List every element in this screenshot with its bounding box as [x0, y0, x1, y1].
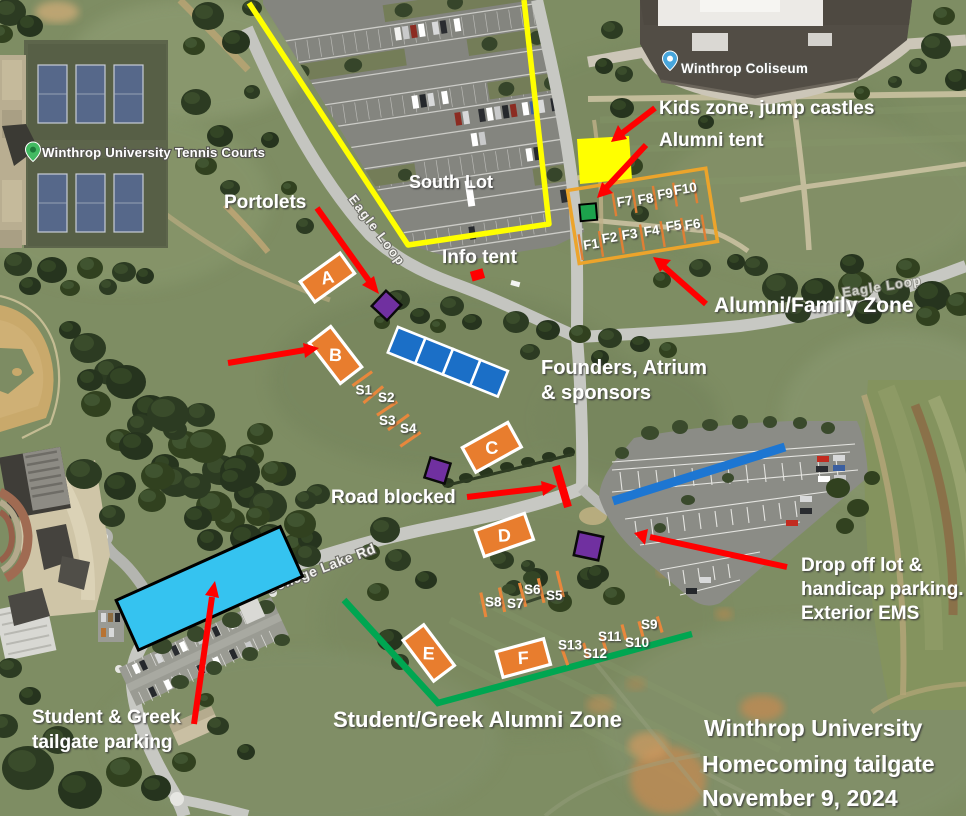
svg-text:F: F: [517, 648, 529, 669]
svg-text:S6: S6: [524, 582, 541, 597]
svg-text:Kids zone, jump castles: Kids zone, jump castles: [659, 98, 874, 119]
svg-text:S2: S2: [378, 390, 395, 405]
svg-text:F6: F6: [684, 216, 702, 233]
svg-text:S1: S1: [356, 383, 373, 398]
svg-text:F8: F8: [637, 190, 655, 207]
svg-text:S8: S8: [485, 595, 502, 610]
svg-text:S3: S3: [379, 413, 396, 428]
svg-text:E: E: [422, 643, 435, 663]
svg-text:tailgate parking: tailgate parking: [32, 732, 172, 753]
svg-text:F7: F7: [616, 193, 634, 210]
svg-text:Founders, Atrium: Founders, Atrium: [541, 357, 707, 379]
svg-text:Info tent: Info tent: [442, 247, 518, 268]
svg-text:S7: S7: [507, 596, 524, 611]
svg-text:B: B: [329, 345, 343, 366]
svg-text:F1: F1: [582, 236, 600, 253]
svg-text:Homecoming tailgate: Homecoming tailgate: [702, 751, 935, 777]
svg-text:Alumni/Family Zone: Alumni/Family Zone: [714, 294, 914, 317]
svg-text:D: D: [497, 525, 511, 546]
svg-text:Road blocked: Road blocked: [331, 487, 456, 508]
svg-text:F9: F9: [656, 185, 674, 202]
svg-text:F4: F4: [643, 222, 661, 239]
svg-text:South Lot: South Lot: [409, 172, 493, 192]
svg-text:Portolets: Portolets: [224, 192, 306, 213]
svg-text:F5: F5: [665, 217, 683, 234]
svg-text:Student/Greek Alumni Zone: Student/Greek Alumni Zone: [333, 707, 622, 732]
svg-text:S4: S4: [400, 421, 417, 436]
svg-text:November 9, 2024: November 9, 2024: [702, 785, 898, 811]
svg-text:Exterior EMS: Exterior EMS: [801, 603, 919, 624]
svg-text:S13: S13: [558, 638, 583, 653]
svg-text:Alumni tent: Alumni tent: [659, 130, 764, 151]
svg-text:S9: S9: [641, 617, 658, 632]
svg-text:C: C: [485, 437, 499, 458]
svg-text:Winthrop University: Winthrop University: [704, 715, 923, 741]
svg-text:S11: S11: [598, 629, 622, 644]
svg-text:F2: F2: [601, 229, 619, 246]
svg-text:Winthrop University Tennis Cou: Winthrop University Tennis Courts: [42, 145, 265, 160]
svg-text:Drop off lot &: Drop off lot &: [801, 555, 923, 576]
svg-text:S10: S10: [625, 635, 649, 650]
svg-text:handicap parking.: handicap parking.: [801, 579, 964, 600]
svg-text:Student & Greek: Student & Greek: [32, 707, 181, 728]
svg-text:F3: F3: [621, 226, 639, 243]
svg-text:Winthrop Coliseum: Winthrop Coliseum: [681, 61, 808, 76]
svg-text:S12: S12: [583, 646, 607, 661]
svg-text:& sponsors: & sponsors: [541, 382, 651, 404]
svg-text:S5: S5: [546, 588, 563, 603]
